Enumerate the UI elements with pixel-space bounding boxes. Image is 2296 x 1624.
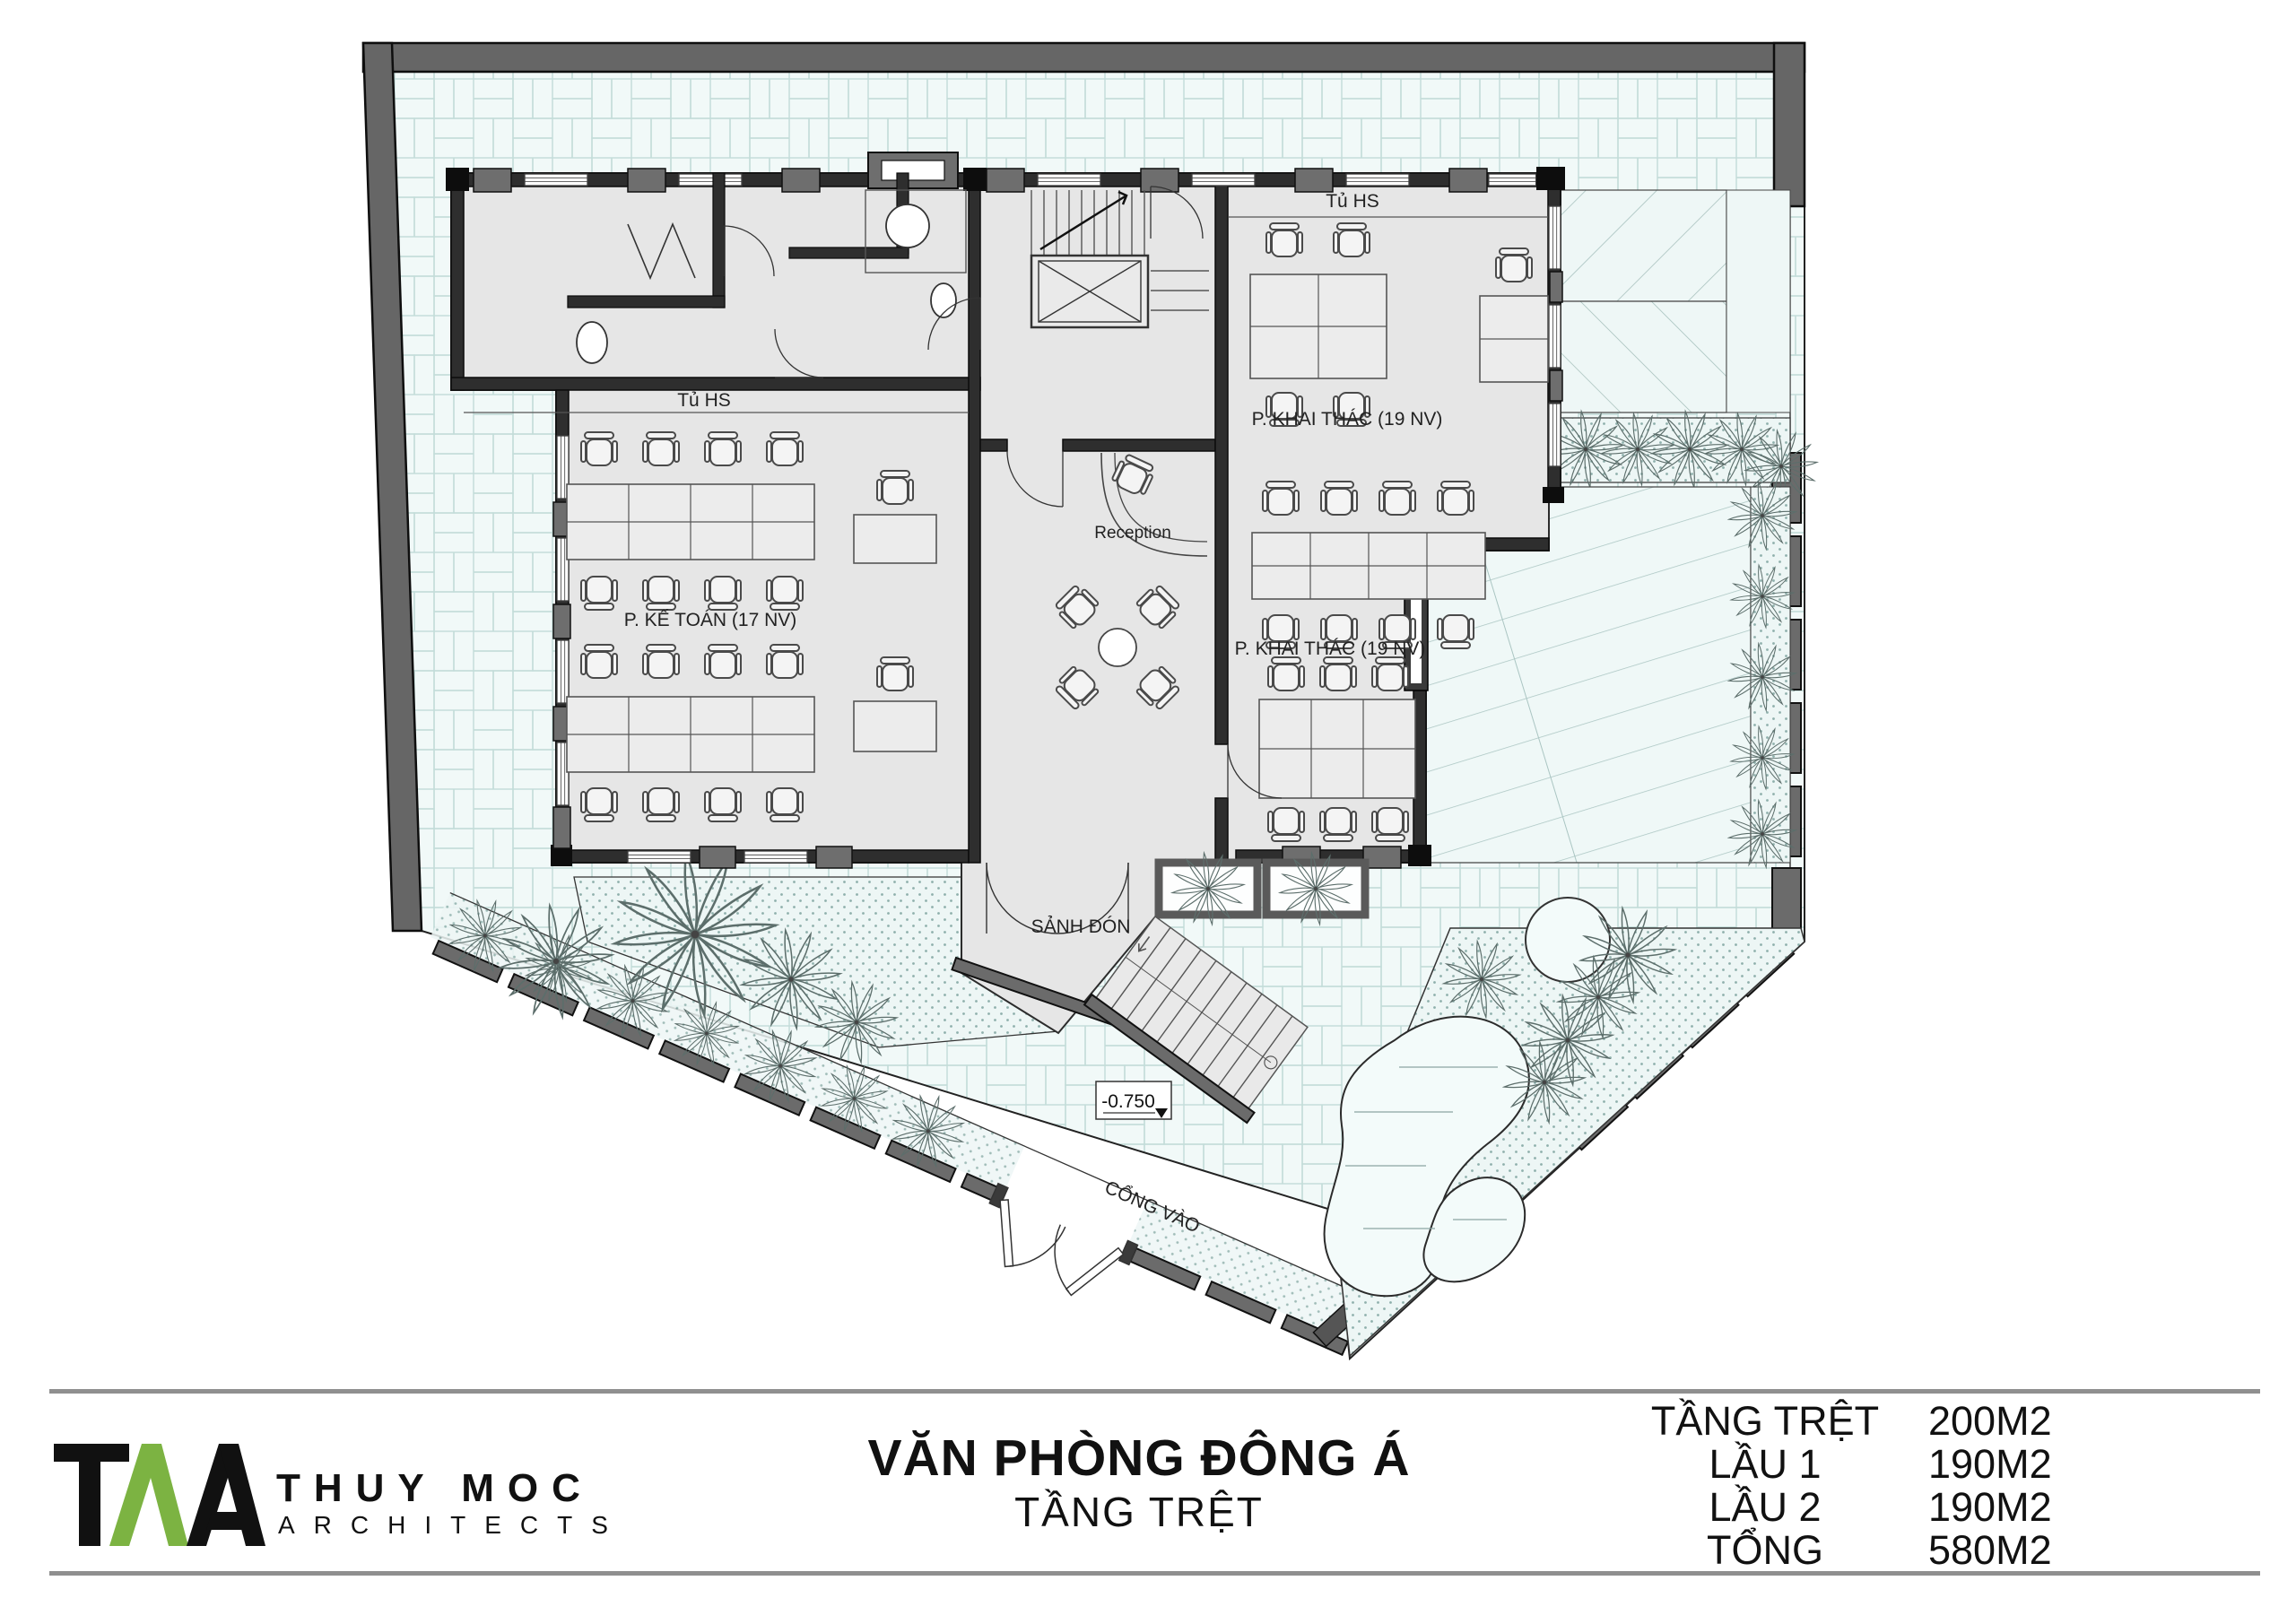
boundary-wall-right [1774,43,1805,206]
level-value: -0.750 [1101,1091,1155,1112]
wall-stair-south-a [980,439,1007,451]
wash-basin [886,204,929,248]
firm-subtitle: ARCHITECTS [278,1511,627,1539]
side-desk [854,701,936,751]
wall-stair-south-b [1063,439,1215,451]
entry-hall-label: SẢNH ĐÓN [1031,916,1131,937]
area-row-value: 190M2 [1928,1441,2052,1487]
operations-upper-label: P. KHAI THÁC (19 NV) [1252,409,1443,430]
ramp-hatch-upper [1561,190,1726,301]
footer-rule-top [49,1389,2260,1394]
ramp-hatch-lower [1561,301,1726,413]
sheet-title: TẦNG TRỆT [1014,1489,1264,1535]
area-row-value: 200M2 [1928,1398,2052,1444]
elevator [1031,256,1148,327]
entry-gate-doors [969,1184,1138,1312]
floor-plan-canvas: Reception Tủ HS P. KẾ TOÁN (17 NV) [0,0,2296,1624]
wall-west-wc [451,173,464,390]
toilet-fixture [577,322,607,363]
area-row-label: LẦU 1 [1709,1441,1821,1487]
side-desk [854,515,936,563]
firm-logo: THUY MOC ARCHITECTS [54,1444,627,1546]
area-row-label: TẦNG TRỆT [1651,1398,1879,1444]
drawing-sheet: Reception Tủ HS P. KẾ TOÁN (17 NV) [0,0,2296,1624]
wall-lobby-west [969,173,980,863]
reception-label: Reception [1094,524,1171,543]
area-row-value: 190M2 [1928,1484,2052,1530]
wall-lobby-east-a [1215,178,1228,744]
level-marker: -0.750 [1096,1081,1171,1119]
project-title: VĂN PHÒNG ĐÔNG Á [867,1429,1410,1487]
firm-name: THUY MOC [276,1466,594,1510]
ramp-side-strip [1726,190,1790,413]
wall-lobby-east-b [1215,798,1228,863]
wall-south-wc [451,378,980,390]
boundary-wall-top [363,43,1805,72]
round-table [1099,629,1136,666]
operations-lower-label: P. KHAI THÁC (19 NV) [1235,638,1426,659]
area-row-value: 580M2 [1928,1527,2052,1573]
title-block: THUY MOC ARCHITECTS VĂN PHÒNG ĐÔNG Á TẦN… [49,1389,2260,1576]
cabinet-label-left: Tủ HS [677,390,731,411]
area-row-label: LẦU 2 [1709,1484,1821,1530]
cabinet-label-right: Tủ HS [1326,191,1379,212]
accounting-room-label: P. KẾ TOÁN (17 NV) [624,610,797,630]
area-row-label: TỔNG [1707,1527,1823,1573]
logo-letter-a [187,1444,265,1546]
area-schedule: TẦNG TRỆT 200M2 LẦU 1 190M2 LẦU 2 190M2 … [1651,1398,2052,1573]
